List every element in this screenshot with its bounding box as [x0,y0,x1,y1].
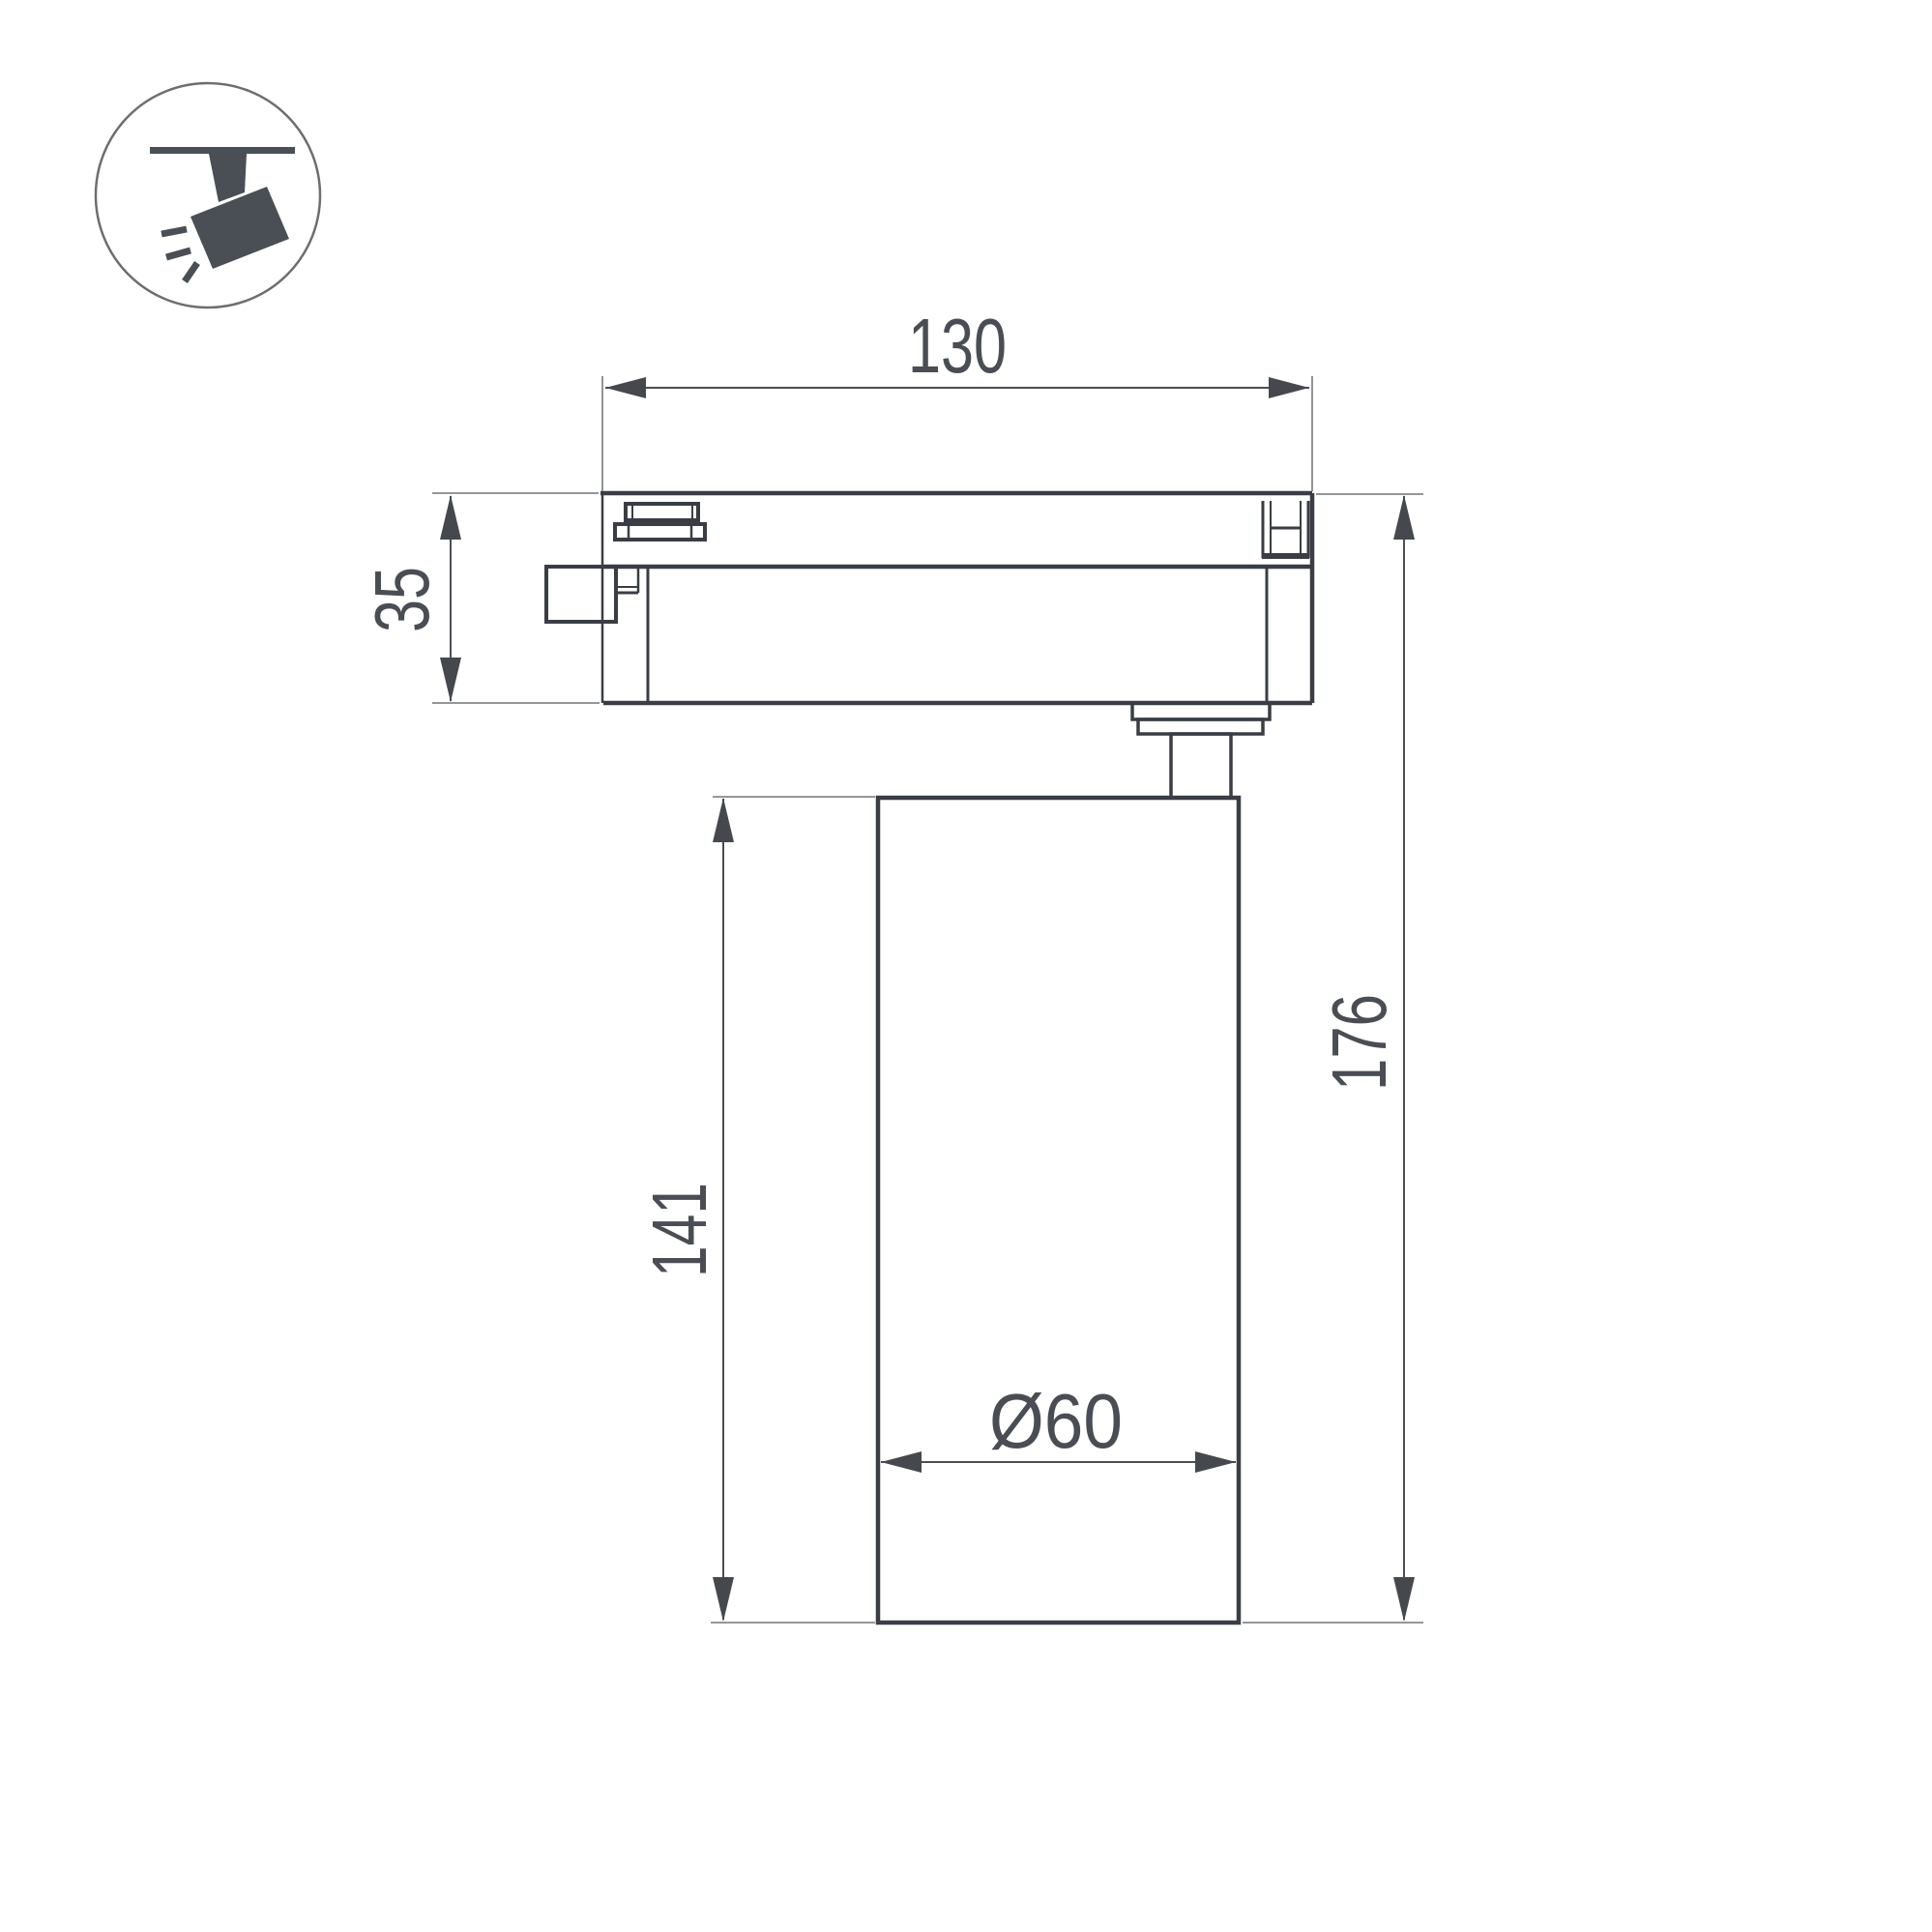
release-lever [546,567,616,622]
dimension-label-body-diameter: Ø60 [989,1378,1123,1464]
icon-circle [96,83,320,307]
swivel-step-1 [1132,703,1270,719]
arrowhead-up-icon [440,495,461,540]
arrowhead-right-icon [1195,1451,1236,1473]
drawing-canvas: 130 35 141 176 Ø60 [0,0,1932,1932]
contact-clip-upper [626,504,698,520]
light-ray-icon [161,229,187,234]
dimension-label-total-height: 176 [1316,994,1402,1091]
contact-clip-lower [615,524,705,540]
arrowhead-left-icon [881,1451,922,1473]
lever-notch [616,567,638,593]
arrowhead-up-icon [713,798,734,842]
arrowhead-down-icon [713,1577,734,1622]
arrowhead-down-icon [1393,1577,1415,1622]
contact-clip-upper-frame [626,504,698,520]
dimension-total-height: 176 [1243,494,1423,1623]
lamp-body [878,798,1239,1623]
swivel-stem [1171,734,1231,798]
dimension-label-track-width: 130 [908,303,1007,389]
dimension-body-diameter: Ø60 [881,1378,1236,1473]
track-adapter [546,493,1312,703]
lock-bracket [1262,501,1309,558]
product-icon [96,83,320,307]
arrowhead-up-icon [1393,495,1415,540]
arrowhead-down-icon [440,658,461,702]
swivel-step-2 [1138,719,1263,734]
arrowhead-left-icon [605,377,646,398]
ceiling-bar-icon [150,147,295,154]
arrowhead-right-icon [1269,377,1309,398]
swivel-connector [1132,703,1270,798]
dimension-adapter-height: 35 [359,493,600,703]
dimension-label-body-height: 141 [636,1183,722,1277]
dimension-label-adapter-height: 35 [359,567,445,632]
dimension-track-width: 130 [602,303,1312,491]
drawing-page: 130 35 141 176 Ø60 [0,0,1932,1932]
dimension-body-height: 141 [636,797,875,1623]
